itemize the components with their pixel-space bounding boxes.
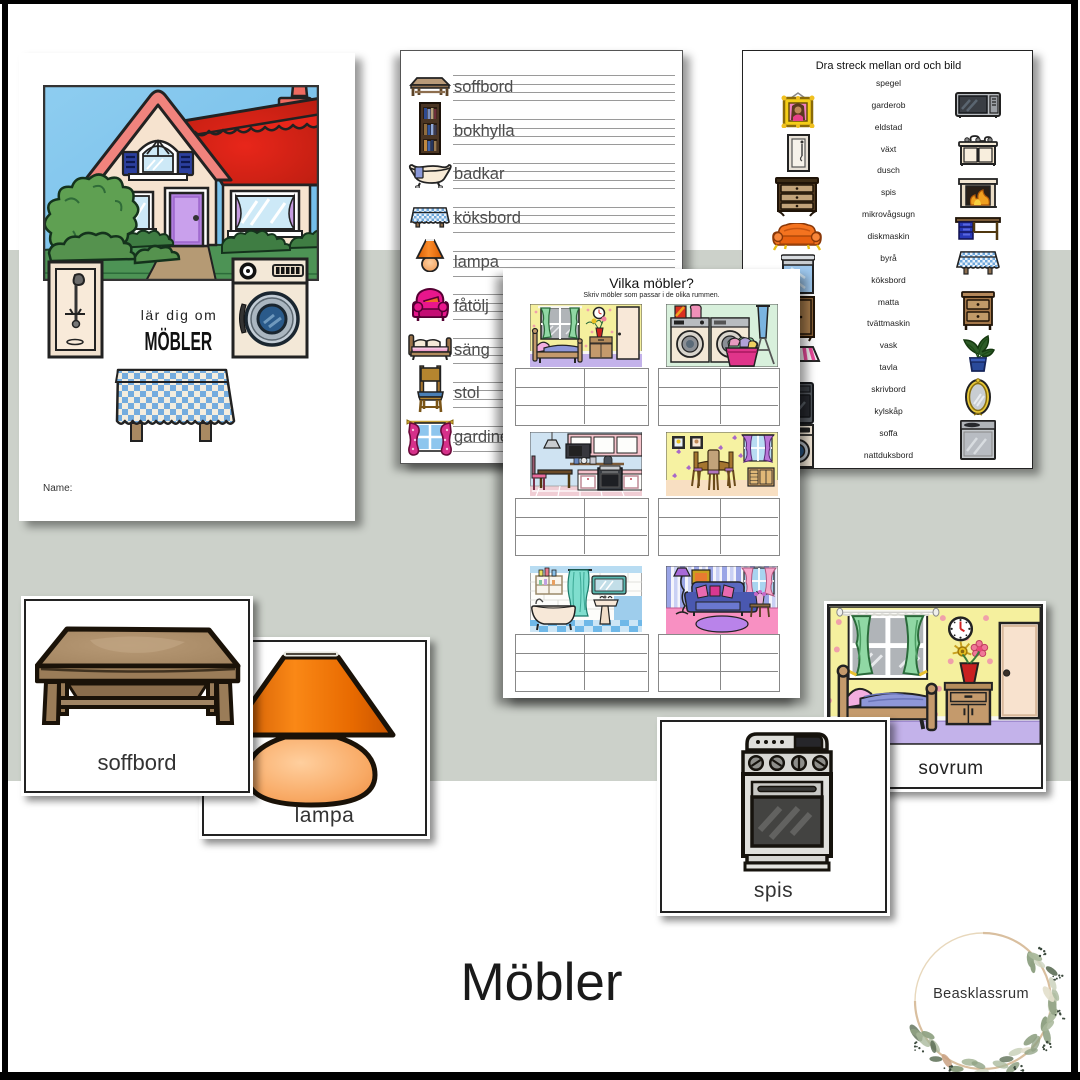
svg-text:Beasklassrum: Beasklassrum <box>933 986 1029 1002</box>
